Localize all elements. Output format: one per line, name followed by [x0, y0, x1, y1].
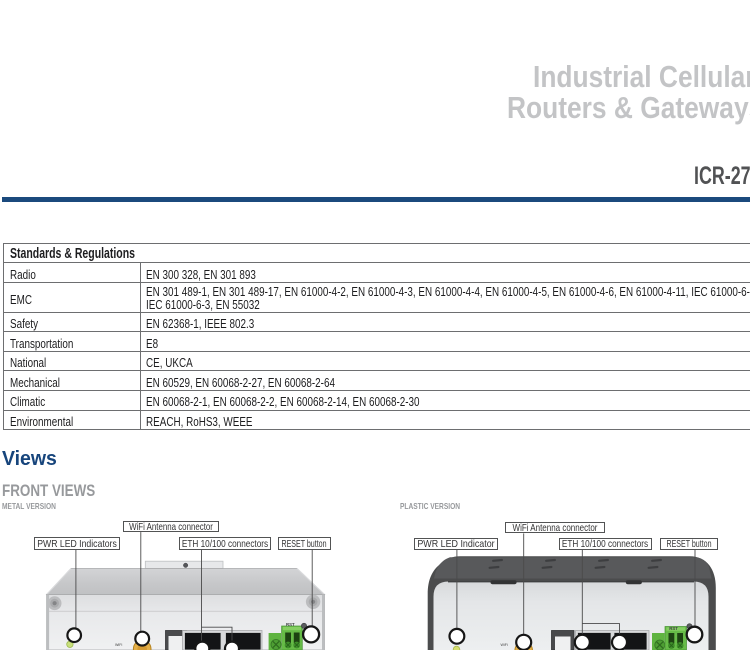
- svg-text:RST: RST: [669, 626, 678, 631]
- svg-text:WiFi: WiFi: [115, 643, 122, 647]
- svg-text:RST: RST: [286, 622, 295, 627]
- svg-text:WiFi: WiFi: [501, 643, 508, 647]
